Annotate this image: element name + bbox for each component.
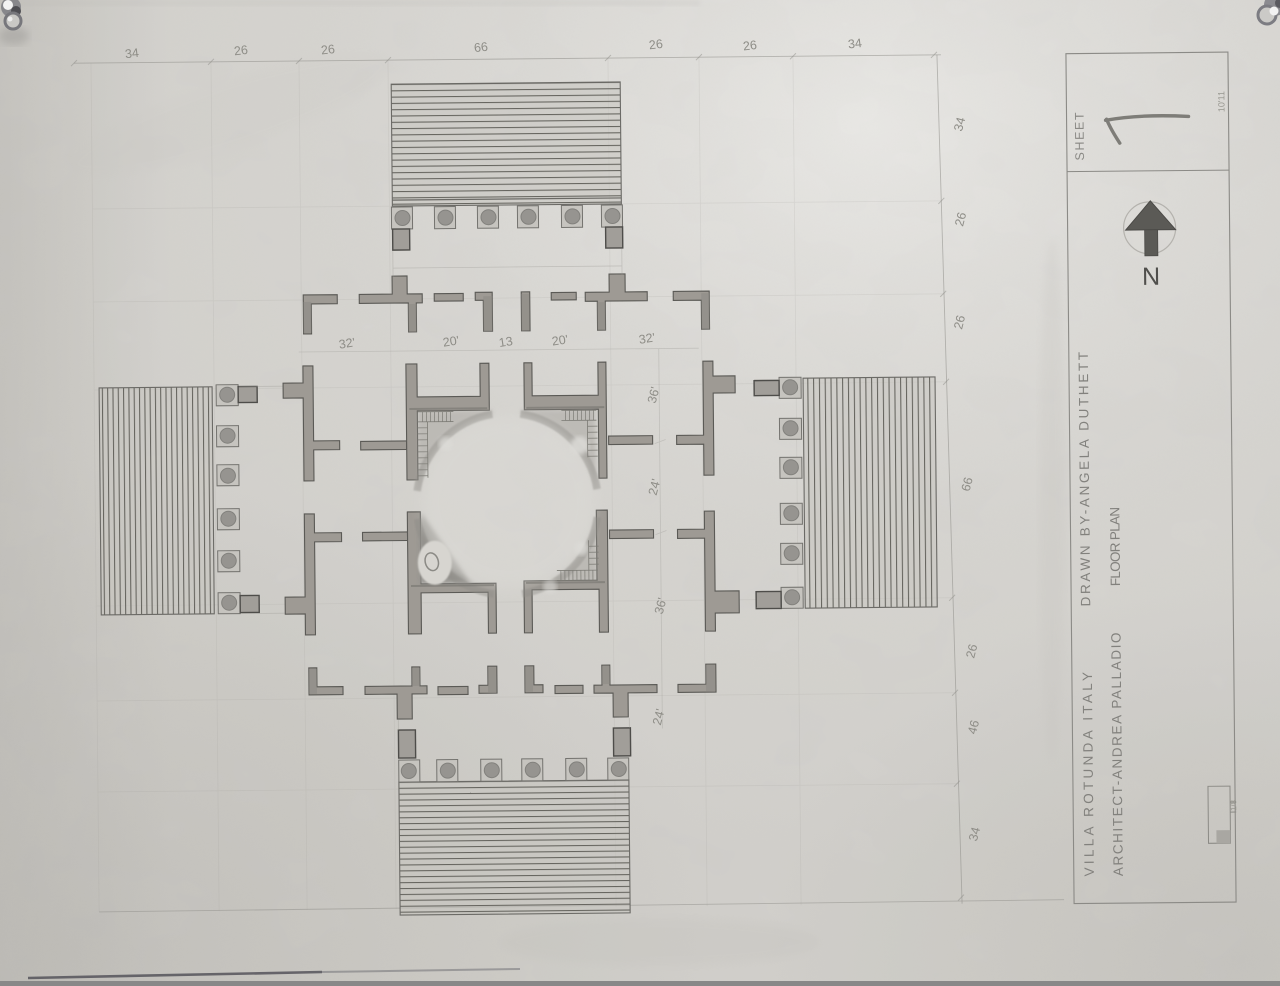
- svg-text:26: 26: [742, 38, 757, 54]
- svg-text:32': 32': [638, 331, 656, 347]
- svg-text:26: 26: [233, 43, 248, 59]
- svg-text:20': 20': [442, 333, 460, 349]
- svg-text:66: 66: [473, 40, 488, 56]
- svg-text:FLOOR PLAN: FLOOR PLAN: [1107, 508, 1123, 587]
- svg-text:DRAWN BY-ANGELA DUTHETT: DRAWN BY-ANGELA DUTHETT: [1076, 349, 1093, 606]
- svg-text:34: 34: [847, 36, 862, 52]
- svg-text:34: 34: [124, 46, 139, 62]
- svg-text:32': 32': [338, 335, 356, 351]
- svg-text:13: 13: [498, 334, 514, 350]
- svg-text:20': 20': [551, 332, 569, 348]
- svg-text:26: 26: [320, 42, 335, 58]
- svg-text:N: N: [1142, 263, 1160, 291]
- svg-text:SHEET: SHEET: [1072, 111, 1086, 161]
- svg-text:VILLA ROTUNDA ITALY: VILLA ROTUNDA ITALY: [1080, 669, 1097, 877]
- svg-text:26: 26: [648, 37, 663, 53]
- svg-text:1/8: 1/8: [1229, 799, 1238, 811]
- svg-text:10'11: 10'11: [1216, 91, 1226, 112]
- svg-text:ARCHITECT-ANDREA PALLADIO: ARCHITECT-ANDREA PALLADIO: [1108, 631, 1125, 876]
